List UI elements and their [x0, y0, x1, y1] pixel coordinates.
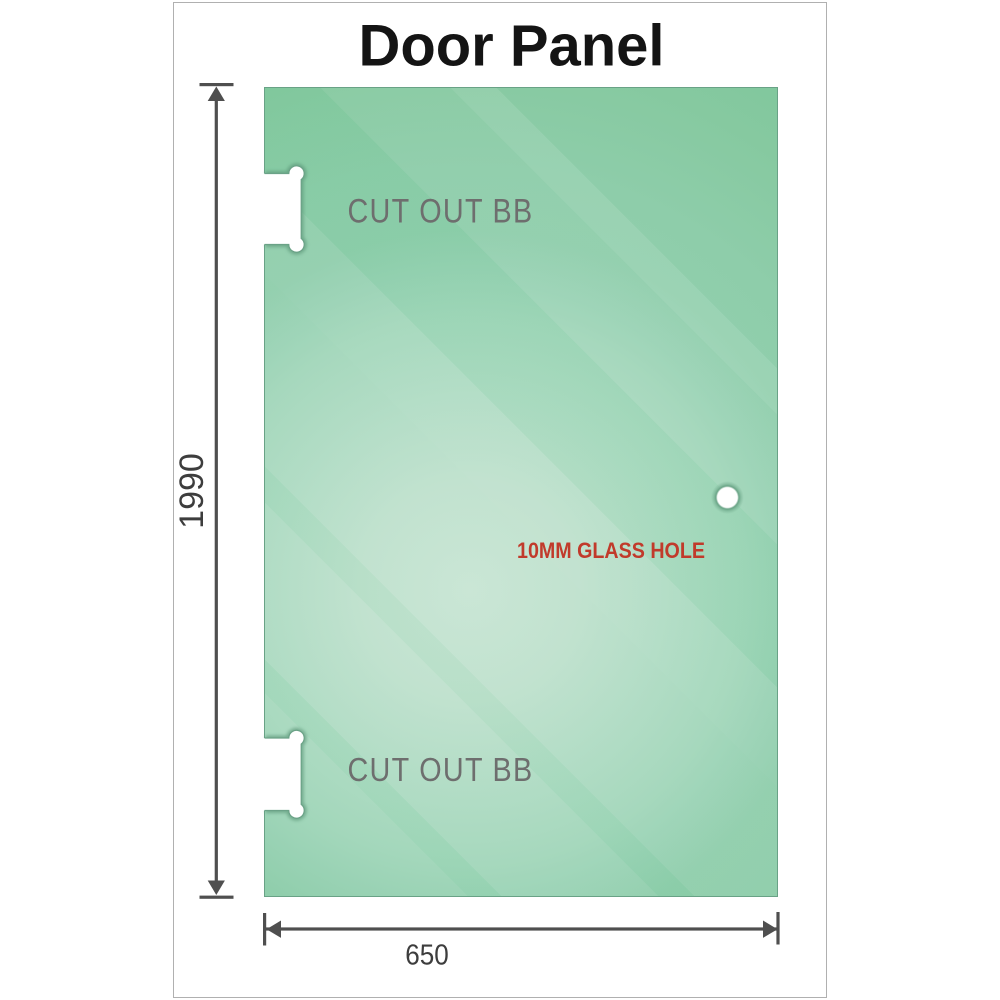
svg-text:1990: 1990: [173, 453, 211, 529]
svg-text:CUT OUT BB: CUT OUT BB: [348, 752, 534, 789]
svg-text:650: 650: [405, 940, 449, 972]
svg-text:CUT OUT BB: CUT OUT BB: [348, 193, 534, 231]
svg-text:10MM GLASS HOLE: 10MM GLASS HOLE: [517, 538, 705, 563]
svg-text:Door Panel: Door Panel: [359, 14, 665, 79]
